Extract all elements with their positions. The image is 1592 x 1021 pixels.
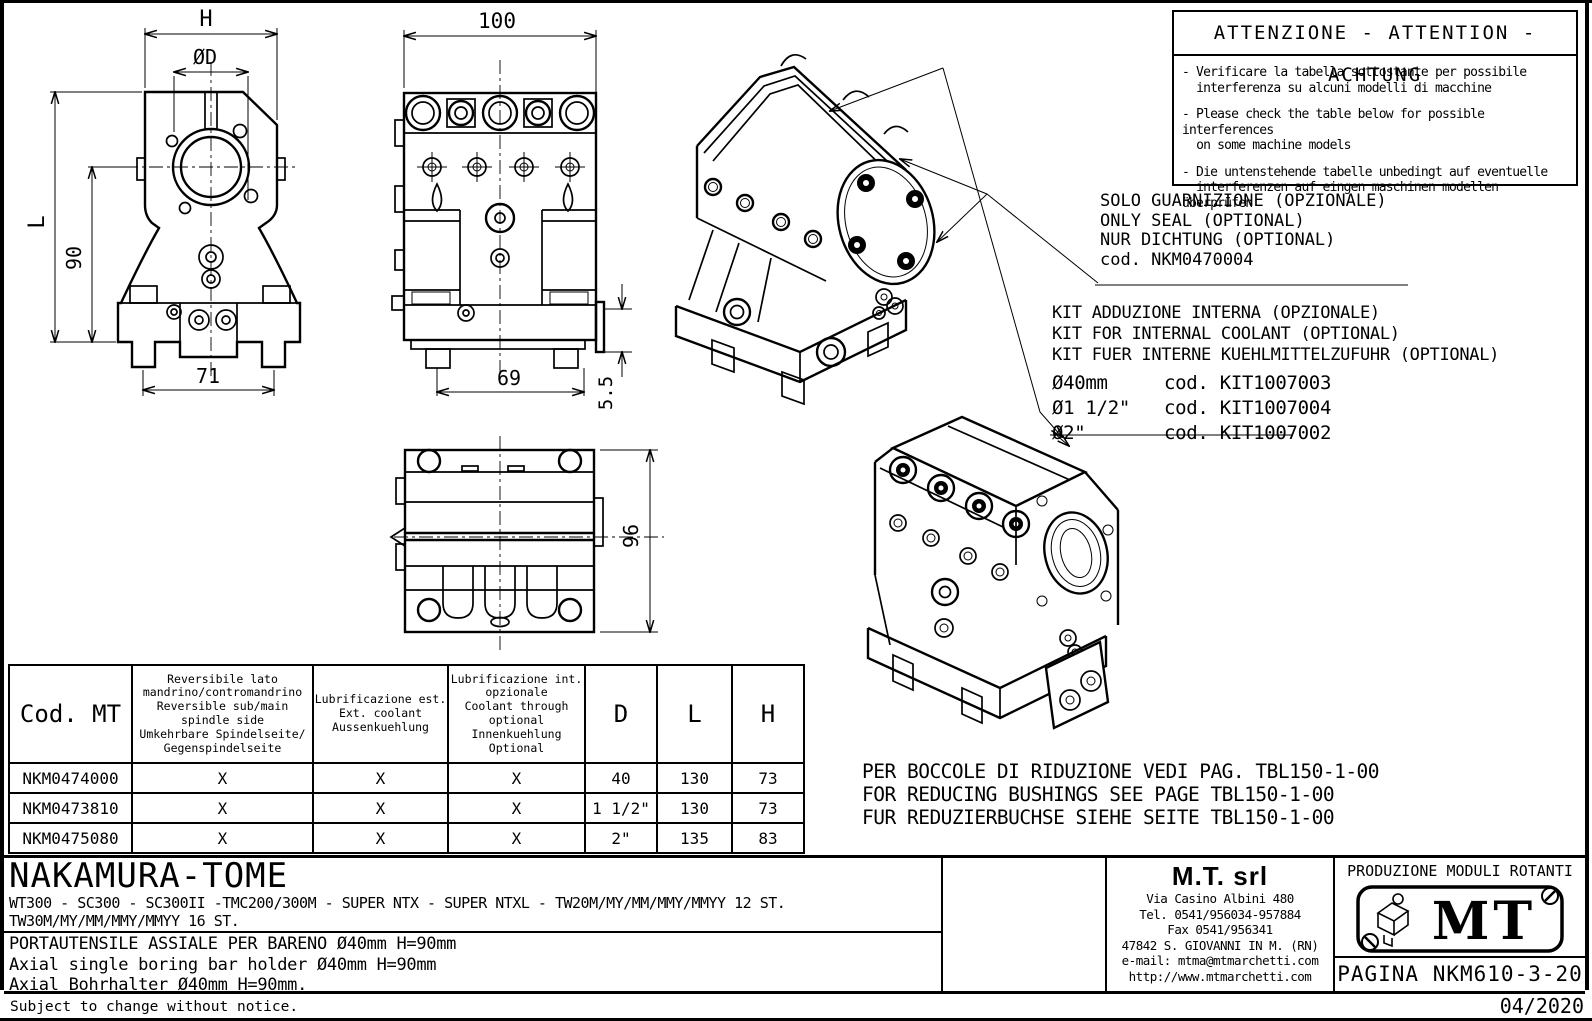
kit-option-40mm: Ø40mmcod. KIT1007003 [1052,371,1499,396]
product-desc-it: PORTAUTENSILE ASSIALE PER BARENO Ø40mm H… [4,934,941,955]
kit-option-size: Ø1 1/2" [1052,396,1164,421]
header-int-coolant: Lubrificazione int. opzionale Coolant th… [448,665,585,763]
dim-top-96: 96 [619,524,643,548]
isometric-view-lower [868,417,1118,728]
cell-reversible: X [132,823,313,853]
attention-items: - Verificare la tabella sottostante per … [1174,56,1576,211]
mt-logo: MT [1335,881,1585,956]
cell-reversible: X [132,793,313,823]
machine-models-line1: WT300 - SC300 - SC300II -TMC200/300M - S… [4,894,941,912]
kit-option-code: cod. KIT1007004 [1164,397,1331,419]
cell-int-coolant: X [448,763,585,793]
cell-reversible: X [132,763,313,793]
isometric-view-upper [676,55,949,404]
header-ext-coolant: Lubrificazione est. Ext. coolant Aussenk… [313,665,448,763]
kit-note-line-en: KIT FOR INTERNAL COOLANT (OPTIONAL) [1052,324,1499,345]
cell-d: 1 1/2" [585,793,657,823]
top-view: 96 [391,436,664,650]
bushings-note-line-it: PER BOCCOLE DI RIDUZIONE VEDI PAG. TBL15… [862,760,1379,783]
attention-item-en: - Please check the table below for possi… [1182,107,1568,154]
page-number: PAGINA NKM610-3-20 [1335,956,1585,991]
dim-front-bore: ØD [193,45,217,69]
header-reversible: Reversibile lato mandrino/contromandrino… [132,665,313,763]
header-h: H [732,665,804,763]
catalog-page: H ØD L 90 71 [0,0,1592,1021]
product-descriptions: PORTAUTENSILE ASSIALE PER BARENO Ø40mm H… [4,931,941,996]
attention-item-it: - Verificare la tabella sottostante per … [1182,65,1568,96]
cell-int-coolant: X [448,823,585,853]
footer-date: 04/2020 [1500,994,1584,1018]
title-block-logo-page: PRODUZIONE MODULI ROTANTI MT [1333,858,1585,991]
cell-code: NKM0475080 [9,823,132,853]
dim-side-69: 69 [497,366,521,390]
page-border-right [1585,0,1589,990]
screw-row [417,152,585,182]
company-phone: Tel. 0541/956034-957884 [1107,907,1333,923]
machine-models-line2: TW30M/MY/MM/MMY/MMYY 16 ST. [4,912,941,930]
dim-side-5-5: 5.5 [595,376,617,410]
cell-d: 2" [585,823,657,853]
kit-option-1-1-2: Ø1 1/2"cod. KIT1007004 [1052,396,1499,421]
footer-disclaimer: Subject to change without notice. [10,999,298,1015]
title-block-company: M.T. srl Via Casino Albini 480 Tel. 0541… [1105,858,1333,991]
attention-box: ATTENZIONE - ATTENTION - ACHTUNG - Verif… [1172,10,1578,186]
page-border-left [0,0,4,990]
cell-l: 130 [657,793,732,823]
cell-h: 73 [732,793,804,823]
dim-front-71: 71 [196,364,220,388]
kit-option-code: cod. KIT1007003 [1164,372,1331,394]
company-email: e-mail: mtma@mtmarchetti.com [1107,953,1333,969]
cell-ext-coolant: X [313,763,448,793]
page-border-top [0,0,1592,3]
front-view: H ØD L 90 71 [25,7,300,396]
table-row: NKM0474000 X X X 40 130 73 [9,763,804,793]
seal-note-code: cod. NKM0470004 [1100,251,1387,271]
attention-title: ATTENZIONE - ATTENTION - ACHTUNG [1174,12,1576,56]
bushings-note-line-en: FOR REDUCING BUSHINGS SEE PAGE TBL150-1-… [862,783,1379,806]
company-street: Via Casino Albini 480 [1107,891,1333,907]
cell-code: NKM0474000 [9,763,132,793]
table-header-row: Cod. MT Reversibile lato mandrino/contro… [9,665,804,763]
seal-note-line-it: SOLO GUARNIZIONE (OPZIONALE) [1100,192,1387,212]
bushings-note-line-de: FUR REDUZIERBUCHSE SIEHE SEITE TBL150-1-… [862,806,1379,829]
machine-brand: NAKAMURA-TOME [4,858,941,894]
spec-table: Cod. MT Reversibile lato mandrino/contro… [8,664,805,854]
coolant-kit-note: KIT ADDUZIONE INTERNA (OPZIONALE) KIT FO… [1052,303,1499,446]
company-name: M.T. srl [1107,858,1333,891]
kit-option-2: Ø2"cod. KIT1007002 [1052,421,1499,446]
cell-code: NKM0473810 [9,793,132,823]
cell-l: 135 [657,823,732,853]
cell-l: 130 [657,763,732,793]
kit-option-size: Ø40mm [1052,371,1164,396]
company-website: http://www.mtmarchetti.com [1107,969,1333,985]
kit-option-code: cod. KIT1007002 [1164,422,1331,444]
table-row: NKM0473810 X X X 1 1/2" 130 73 [9,793,804,823]
cell-h: 73 [732,763,804,793]
mt-logo-text: MT [1432,891,1536,952]
kit-options: Ø40mmcod. KIT1007003 Ø1 1/2"cod. KIT1007… [1052,371,1499,446]
company-fax: Fax 0541/956341 [1107,922,1333,938]
rotary-module-icon [1378,894,1408,946]
kit-note-line-it: KIT ADDUZIONE INTERNA (OPZIONALE) [1052,303,1499,324]
kit-option-size: Ø2" [1052,421,1164,446]
bushings-note: PER BOCCOLE DI RIDUZIONE VEDI PAG. TBL15… [862,760,1379,829]
header-l: L [657,665,732,763]
production-tagline: PRODUZIONE MODULI ROTANTI [1335,858,1585,881]
product-desc-de: Axial Bohrhalter Ø40mm H=90mm. [4,975,941,996]
title-block-empty-cell [941,858,1105,991]
seal-note-line-en: ONLY SEAL (OPTIONAL) [1100,212,1387,232]
mt-logo-graphic: MT [1354,883,1566,955]
cell-ext-coolant: X [313,823,448,853]
header-d: D [585,665,657,763]
seal-note-line-de: NUR DICHTUNG (OPTIONAL) [1100,231,1387,251]
header-cod-mt: Cod. MT [9,665,132,763]
dim-front-l: L [25,215,50,228]
dim-front-h: H [199,7,212,32]
cell-ext-coolant: X [313,793,448,823]
dim-side-100: 100 [478,9,516,33]
cell-int-coolant: X [448,793,585,823]
company-city: 47842 S. GIOVANNI IN M. (RN) [1107,938,1333,954]
cell-d: 40 [585,763,657,793]
product-desc-en: Axial single boring bar holder Ø40mm H=9… [4,955,941,976]
side-view: 100 69 5.5 [392,9,632,410]
table-row: NKM0475080 X X X 2" 135 83 [9,823,804,853]
kit-note-line-de: KIT FUER INTERNE KUEHLMITTELZUFUHR (OPTI… [1052,345,1499,366]
title-block-machines: NAKAMURA-TOME WT300 - SC300 - SC300II -T… [4,858,941,991]
cell-h: 83 [732,823,804,853]
seal-note: SOLO GUARNIZIONE (OPZIONALE) ONLY SEAL (… [1100,192,1387,270]
dim-front-90: 90 [62,246,86,270]
title-block: NAKAMURA-TOME WT300 - SC300 - SC300II -T… [4,855,1585,994]
